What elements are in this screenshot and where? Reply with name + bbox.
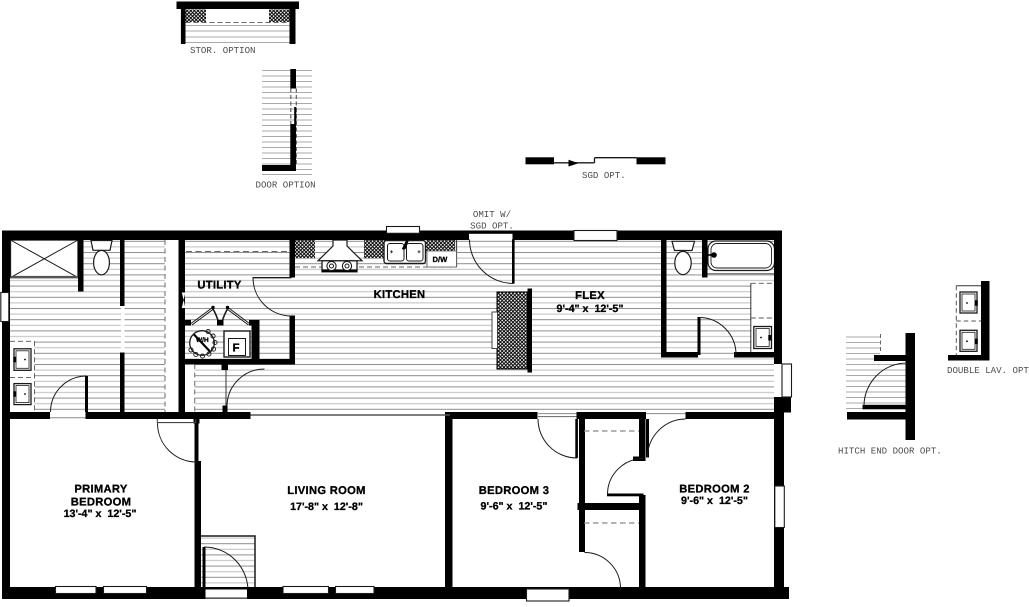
svg-text:PRIMARY: PRIMARY bbox=[74, 484, 128, 496]
svg-text:LIVING ROOM: LIVING ROOM bbox=[287, 485, 366, 497]
svg-text:HITCH END DOOR OPT.: HITCH END DOOR OPT. bbox=[838, 445, 942, 456]
svg-text:9'-4" x 12'-5": 9'-4" x 12'-5" bbox=[557, 303, 624, 315]
svg-text:F: F bbox=[233, 343, 240, 355]
svg-text:FLEX: FLEX bbox=[575, 290, 605, 302]
svg-text:9'-6" x 12'-5": 9'-6" x 12'-5" bbox=[481, 500, 548, 512]
svg-text:BEDROOM 2: BEDROOM 2 bbox=[679, 483, 749, 495]
svg-text:BEDROOM: BEDROOM bbox=[71, 496, 132, 508]
svg-text:STOR. OPTION: STOR. OPTION bbox=[190, 45, 256, 56]
svg-text:W/H: W/H bbox=[196, 337, 209, 344]
svg-text:17'-8" x 12'-8": 17'-8" x 12'-8" bbox=[290, 501, 363, 513]
svg-text:9'-6" x 12'-5": 9'-6" x 12'-5" bbox=[681, 495, 748, 507]
svg-text:SGD OPT.: SGD OPT. bbox=[582, 170, 626, 181]
svg-text:SGD OPT.: SGD OPT. bbox=[470, 221, 514, 232]
svg-text:DOUBLE LAV. OPT.: DOUBLE LAV. OPT. bbox=[947, 365, 1029, 376]
svg-text:13'-4" x 12'-5": 13'-4" x 12'-5" bbox=[64, 508, 137, 520]
svg-text:OMIT W/: OMIT W/ bbox=[473, 209, 511, 220]
svg-text:UTILITY: UTILITY bbox=[197, 280, 242, 292]
svg-text:D/W: D/W bbox=[433, 255, 449, 264]
svg-text:BEDROOM 3: BEDROOM 3 bbox=[479, 485, 549, 497]
svg-text:KITCHEN: KITCHEN bbox=[374, 289, 426, 301]
svg-text:DOOR OPTION: DOOR OPTION bbox=[256, 179, 316, 190]
